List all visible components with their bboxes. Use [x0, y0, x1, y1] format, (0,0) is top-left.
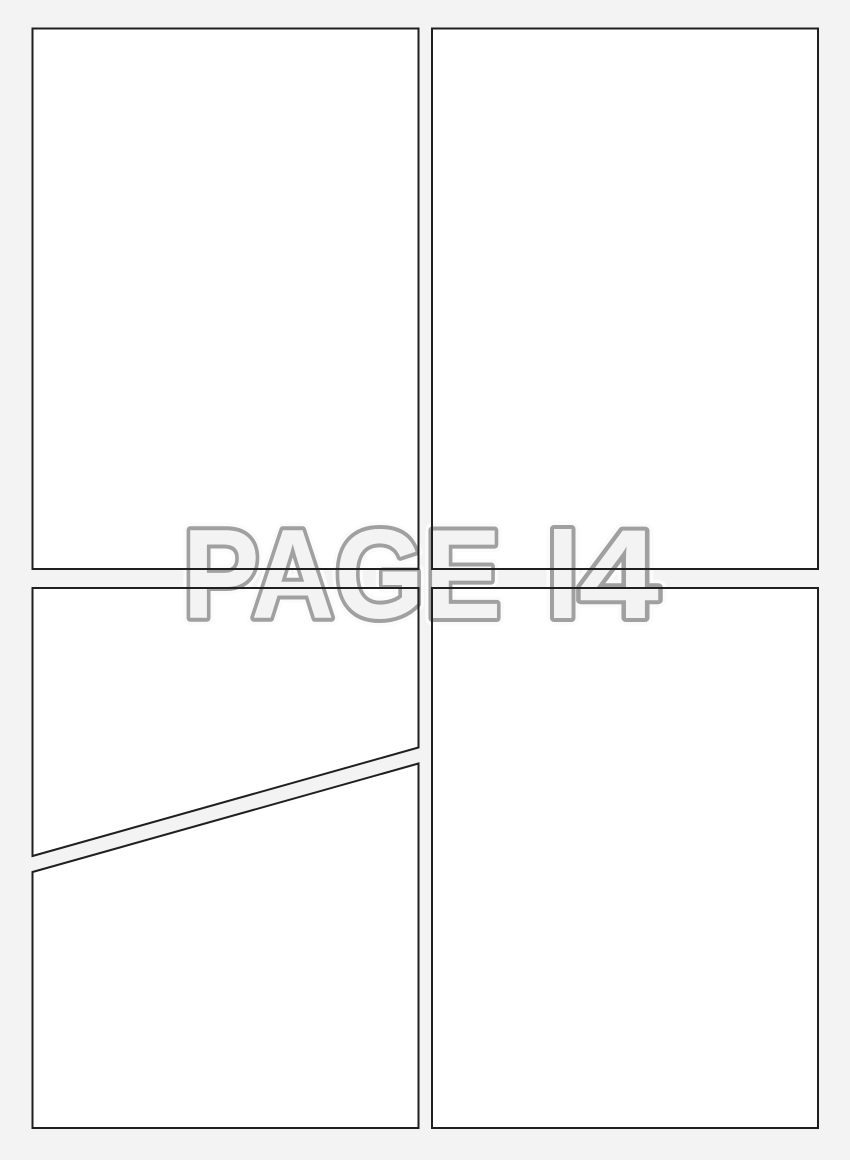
svg-text:PAGE: PAGE: [183, 503, 502, 645]
svg-text:4: 4: [579, 503, 660, 645]
